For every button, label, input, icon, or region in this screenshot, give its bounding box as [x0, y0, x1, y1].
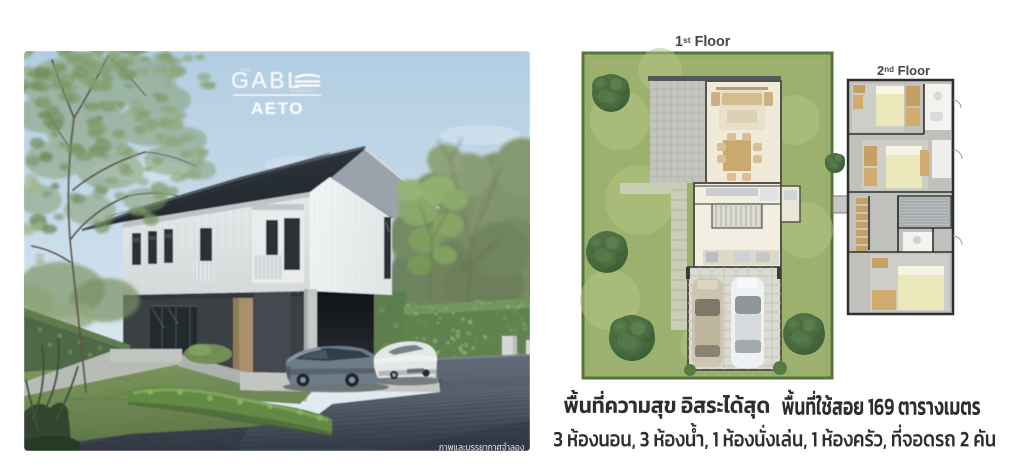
svg-text:AETO: AETO [251, 99, 304, 118]
svg-text:2nd Floor: 2nd Floor [877, 63, 930, 78]
svg-text:RESIDENCES: RESIDENCES [291, 89, 314, 93]
svg-text:1st Floor: 1st Floor [675, 34, 731, 50]
